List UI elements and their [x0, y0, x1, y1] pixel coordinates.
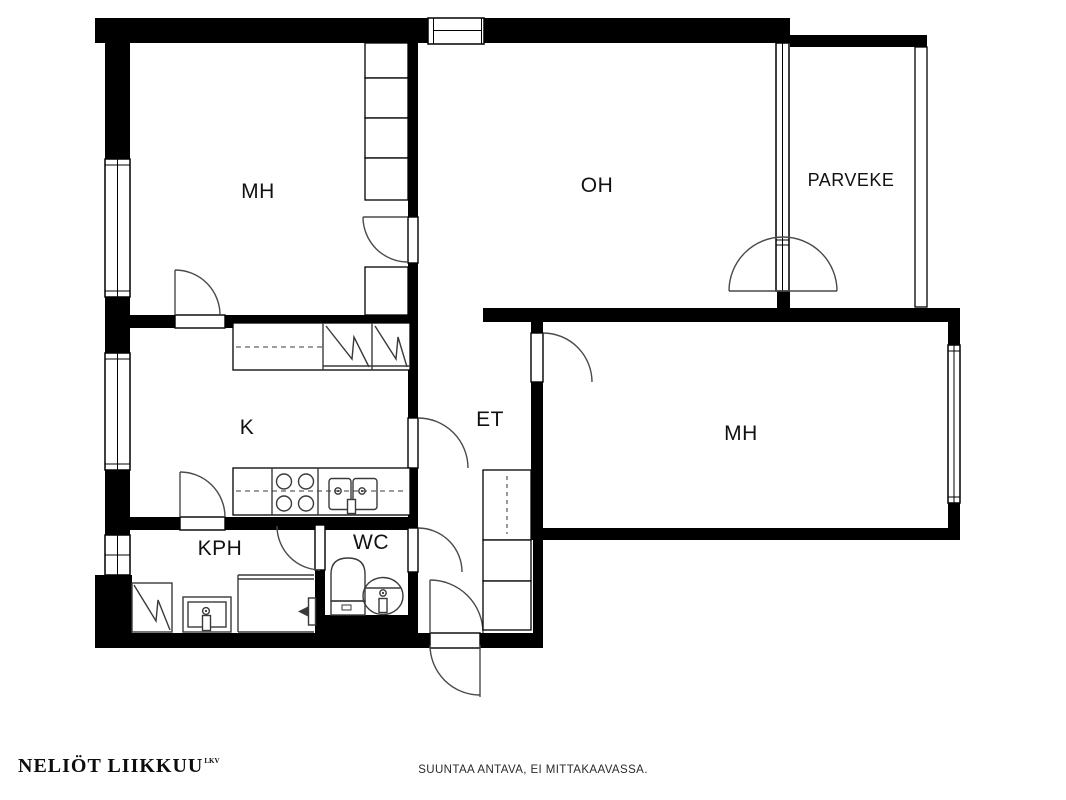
- door-leaf-bedroom2: [531, 333, 543, 382]
- room-label-kitchen: K: [240, 416, 255, 439]
- wc-fixtures: [331, 558, 403, 615]
- shower-area-icon: [238, 575, 316, 632]
- room-label-bathroom: KPH: [198, 537, 243, 560]
- room-label-bedroom2: MH: [724, 422, 758, 445]
- window-living-top: [428, 18, 484, 44]
- kitchen-upper-counter: [233, 323, 410, 370]
- room-label-entry-hall: ET: [476, 408, 504, 431]
- shower-tap-icon: [298, 607, 308, 617]
- door-leaf-bedroom1: [408, 217, 418, 263]
- bathroom-sink-icon: [183, 597, 231, 632]
- door-leaf-wc: [408, 528, 418, 572]
- closet-hall: [483, 470, 531, 630]
- room-label-living-room: OH: [581, 174, 614, 197]
- balcony-glass-wall: [776, 43, 789, 291]
- window-bedroom1-left: [105, 159, 130, 297]
- kitchen-lower-counter: [233, 468, 410, 515]
- room-label-toilet: WC: [353, 531, 389, 554]
- window-bathroom-left: [105, 535, 130, 575]
- toilet-icon: [331, 558, 365, 615]
- wc-basin-icon: [363, 578, 403, 615]
- door-leaf-kitchen: [408, 418, 418, 468]
- door-leaf-entrance: [430, 633, 480, 648]
- floor-plan-drawing: MH OH PARVEKE K ET MH KPH WC: [0, 0, 1066, 800]
- window-bedroom2-right: [948, 345, 960, 503]
- room-label-bedroom1: MH: [241, 180, 275, 203]
- door-leaf-bedroom1-kitchen: [175, 315, 225, 328]
- window-kitchen-left: [105, 353, 130, 470]
- door-leaf-bathroom-wc: [315, 525, 325, 570]
- washing-machine-icon: [132, 583, 172, 632]
- room-label-balcony: PARVEKE: [808, 170, 895, 190]
- disclaimer-text: SUUNTAA ANTAVA, EI MITTAKAAVASSA.: [0, 764, 1066, 776]
- door-leaf-bathroom: [180, 517, 225, 530]
- bathroom-fixtures: [132, 575, 316, 632]
- wardrobe-bedroom1: [365, 43, 408, 315]
- balcony-railing: [915, 47, 927, 307]
- floor-plan-page: MH OH PARVEKE K ET MH KPH WC NELIÖT LIIK…: [0, 0, 1066, 800]
